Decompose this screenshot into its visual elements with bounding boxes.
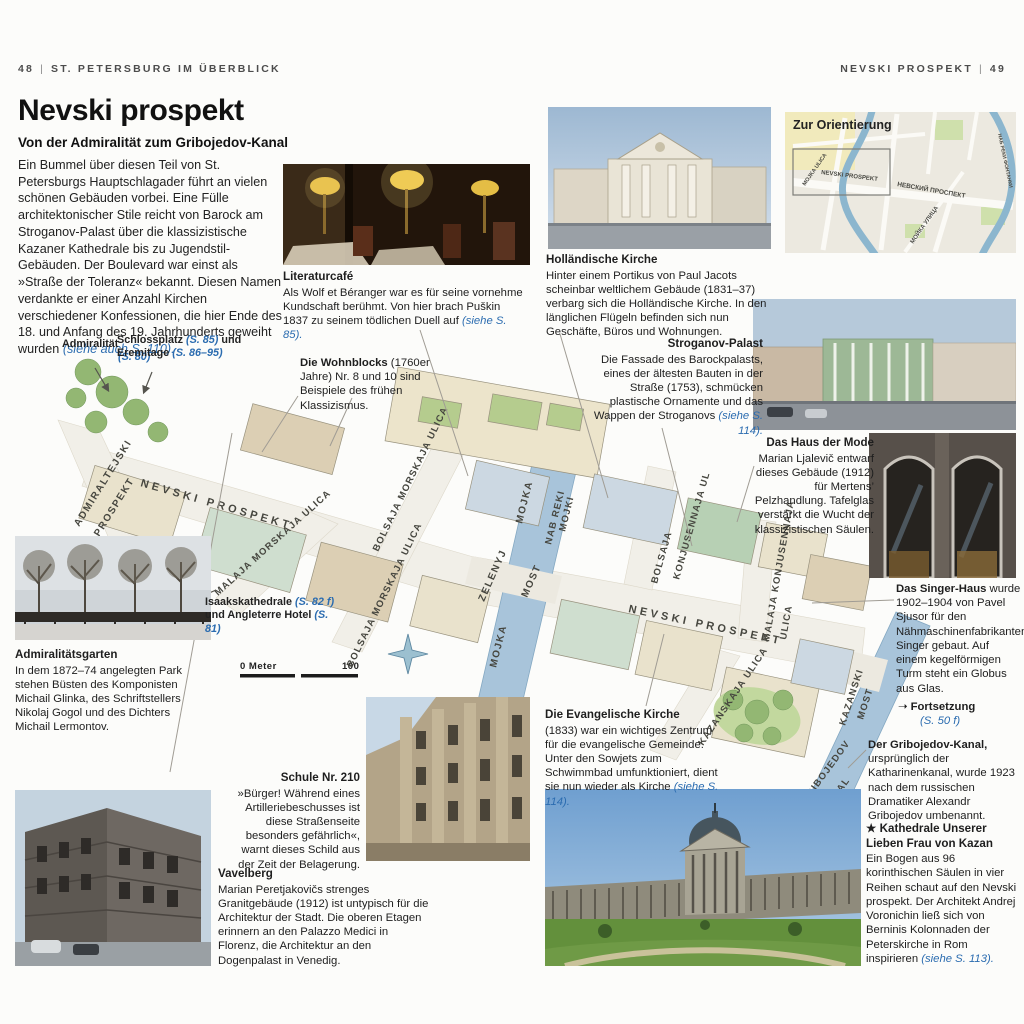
caption-body: Die Fassade des Barockpalasts, eines der… (577, 353, 763, 438)
page-ref: (S. 85) (186, 334, 218, 346)
caption-body: Marian Peretjakovičs strenges Granitgebä… (218, 883, 432, 968)
caption-stroganov-palast: Stroganov-Palast Die Fassade des Barockp… (577, 337, 763, 438)
caption-body: Als Wolf et Béranger war es für seine vo… (283, 286, 523, 343)
caption-fortsetzung: ➝ Fortsetzung (S. 50 f) (898, 700, 1010, 728)
heading-text: Kathedrale Unserer Lieben Frau von Kazan (866, 822, 993, 850)
caption-body: In dem 1872–74 angelegten Park stehen Bü… (15, 664, 185, 735)
caption-body: (1833) war ein wichtiges Zentrum für die… (545, 724, 719, 809)
caption-body: Hinter einem Portikus von Paul Jacots sc… (546, 269, 776, 340)
caption-singer-haus: Das Singer-Haus wurde 1902–1904 von Pave… (896, 582, 1022, 696)
book-spread: 48|ST. PETERSBURG IM ÜBERBLICK NEVSKI PR… (0, 0, 1024, 1024)
scale-bar: 0 Meter 100 (240, 661, 359, 678)
admiralitaetsgarten-photo (15, 536, 211, 640)
vavelberg-photo (15, 790, 211, 966)
caption-admiralitaetsgarten: Admiralitätsgarten In dem 1872–74 angele… (15, 648, 185, 735)
label-text: Isaakskathedrale (205, 596, 295, 608)
page-ref: (siehe S. 114). (718, 410, 763, 436)
label-text: Schlossplatz (117, 334, 186, 346)
stroganov-palast-photo (753, 299, 1016, 430)
caption-heading: Literaturcafé (283, 270, 523, 285)
caption-haus-der-mode: Das Haus der Mode Marian Ljalevič entwar… (750, 436, 874, 537)
caption-heading: ★ Kathedrale Unserer Lieben Frau von Kaz… (866, 822, 1022, 851)
caption-heading: Das Haus der Mode (750, 436, 874, 451)
caption-evangelische-kirche: Die Evangelische Kirche (1833) war ein w… (545, 708, 719, 809)
body-text: Ein Bogen aus 96 korinthischen Säulen in… (866, 853, 1016, 965)
caption-wohnblocks: Die Wohnblocks (1760er Jahre) Nr. 8 und … (300, 356, 430, 413)
arrow-right-icon: ➝ (898, 701, 907, 713)
caption-schule-210: Schule Nr. 210 »Bürger! Während eines Ar… (236, 771, 360, 872)
orientierung-title: Zur Orientierung (793, 118, 892, 132)
caption-heading: Die Wohnblocks (300, 357, 388, 369)
caption-body: »Bürger! Während eines Artilleriebeschus… (236, 787, 360, 872)
caption-heading: Die Evangelische Kirche (545, 708, 719, 723)
label-text: und (218, 334, 241, 346)
caption-gribojedov-kanal: Der Gribojedov-Kanal, ursprünglich der K… (868, 738, 1020, 823)
hollaendische-kirche-photo (548, 107, 771, 249)
caption-body: Marian Ljalevič entwarf dieses Gebäude (… (750, 452, 874, 537)
caption-kazan-kathedrale: ★ Kathedrale Unserer Lieben Frau von Kaz… (866, 822, 1022, 966)
caption-heading: Schule Nr. 210 (236, 771, 360, 786)
caption-heading: Vavelberg (218, 867, 432, 882)
caption-heading: Admiralitätsgarten (15, 648, 185, 663)
map-label-schlossplatz-eremitage: Schlossplatz (S. 85) und Eremitage (S. 8… (117, 334, 267, 361)
label-text: und Angleterre Hotel (205, 609, 314, 621)
body-text: ursprünglich der Katharinenkanal, wurde … (868, 753, 1015, 822)
caption-heading: Fortsetzung (911, 701, 976, 713)
caption-literaturcafe: Literaturcafé Als Wolf et Béranger war e… (283, 270, 523, 342)
caption-heading: Der Gribojedov-Kanal, (868, 739, 987, 751)
caption-body: Ein Bogen aus 96 korinthischen Säulen in… (866, 852, 1022, 966)
caption-heading: Stroganov-Palast (577, 337, 763, 352)
schule-210-photo (366, 697, 530, 861)
scale-zero: 0 Meter (240, 661, 277, 672)
orientierung-map: NEVSKI PROSPEKT НЕВСКИЙ ПРОСПЕКТ MOJKA U… (785, 112, 1016, 253)
literaturcafe-photo (283, 164, 530, 265)
label-text: Eremitage (117, 347, 172, 359)
body-text: wurde 1902–1904 von Pavel Sjusor für den… (896, 583, 1024, 695)
compass-rose-icon (388, 634, 428, 674)
kazan-kathedrale-photo (545, 789, 861, 966)
caption-heading: Das Singer-Haus (896, 583, 986, 595)
caption-heading: Holländische Kirche (546, 253, 776, 268)
page-ref: (S. 50 f) (920, 714, 1010, 728)
caption-vavelberg: Vavelberg Marian Peretjakovičs strenges … (218, 867, 432, 968)
star-icon: ★ (866, 822, 876, 835)
page-ref: (S. 86–95) (172, 347, 222, 359)
caption-hollaendische-kirche: Holländische Kirche Hinter einem Portiku… (546, 253, 776, 340)
map-label-isaakskathedrale: Isaakskathedrale (S. 82 f) und Angleterr… (205, 596, 335, 636)
page-ref: (S. 82 f) (295, 596, 334, 608)
haus-der-mode-photo (869, 433, 1016, 578)
page-ref: (siehe S. 113). (921, 953, 994, 965)
